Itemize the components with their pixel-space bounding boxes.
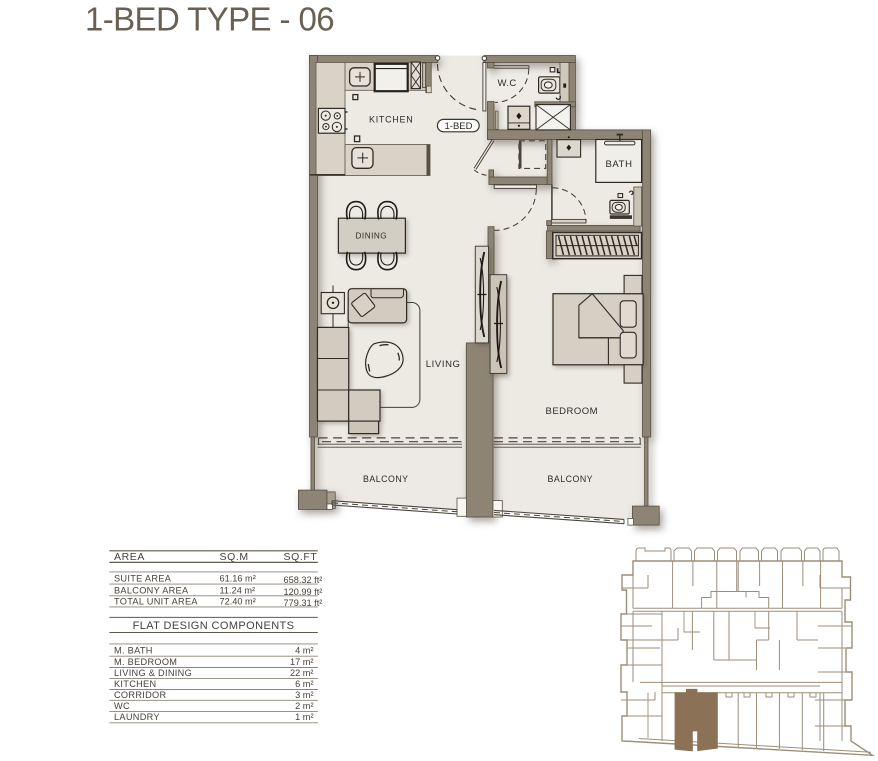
svg-text:CORRIDOR: CORRIDOR [114, 690, 166, 700]
svg-text:FLAT DESIGN COMPONENTS: FLAT DESIGN COMPONENTS [133, 620, 295, 632]
svg-text:6 m²: 6 m² [295, 679, 313, 689]
svg-text:BALCONY: BALCONY [363, 474, 409, 484]
svg-text:LIVING & DINING: LIVING & DINING [114, 668, 192, 678]
svg-text:DINING: DINING [356, 232, 388, 241]
svg-text:779.31 ft²: 779.31 ft² [284, 598, 323, 608]
svg-text:120.99 ft²: 120.99 ft² [284, 587, 323, 597]
svg-text:SQ.M: SQ.M [220, 551, 249, 563]
svg-text:BEDROOM: BEDROOM [546, 406, 599, 417]
svg-text:LAUNDRY: LAUNDRY [114, 712, 160, 722]
svg-text:1-BED: 1-BED [445, 121, 473, 132]
svg-text:1 m²: 1 m² [295, 712, 313, 722]
svg-text:11.24 m²: 11.24 m² [220, 585, 256, 595]
svg-text:M. BEDROOM: M. BEDROOM [114, 657, 177, 667]
svg-text:2 m²: 2 m² [295, 701, 313, 711]
svg-text:LIVING: LIVING [426, 359, 461, 370]
svg-text:KITCHEN: KITCHEN [114, 679, 156, 689]
svg-text:M. BATH: M. BATH [114, 646, 153, 656]
svg-text:17 m²: 17 m² [290, 657, 314, 667]
svg-text:3 m²: 3 m² [295, 690, 313, 700]
svg-text:658.32 ft²: 658.32 ft² [284, 575, 323, 585]
svg-text:SQ.FT: SQ.FT [284, 551, 318, 563]
svg-text:TOTAL UNIT AREA: TOTAL UNIT AREA [114, 597, 198, 607]
svg-text:KITCHEN: KITCHEN [369, 115, 413, 125]
svg-text:1-BED TYPE - 06: 1-BED TYPE - 06 [85, 1, 334, 38]
svg-text:22 m²: 22 m² [290, 668, 314, 678]
svg-text:4 m²: 4 m² [295, 646, 313, 656]
svg-text:SUITE AREA: SUITE AREA [114, 574, 172, 584]
svg-text:AREA: AREA [114, 551, 145, 563]
svg-text:W.C: W.C [498, 78, 517, 89]
svg-text:BALCONY AREA: BALCONY AREA [114, 585, 189, 595]
svg-text:72.40 m²: 72.40 m² [220, 597, 256, 607]
svg-text:WC: WC [114, 701, 130, 711]
svg-text:BATH: BATH [606, 159, 633, 170]
svg-text:61.16 m²: 61.16 m² [220, 574, 256, 584]
svg-text:BALCONY: BALCONY [548, 474, 594, 484]
